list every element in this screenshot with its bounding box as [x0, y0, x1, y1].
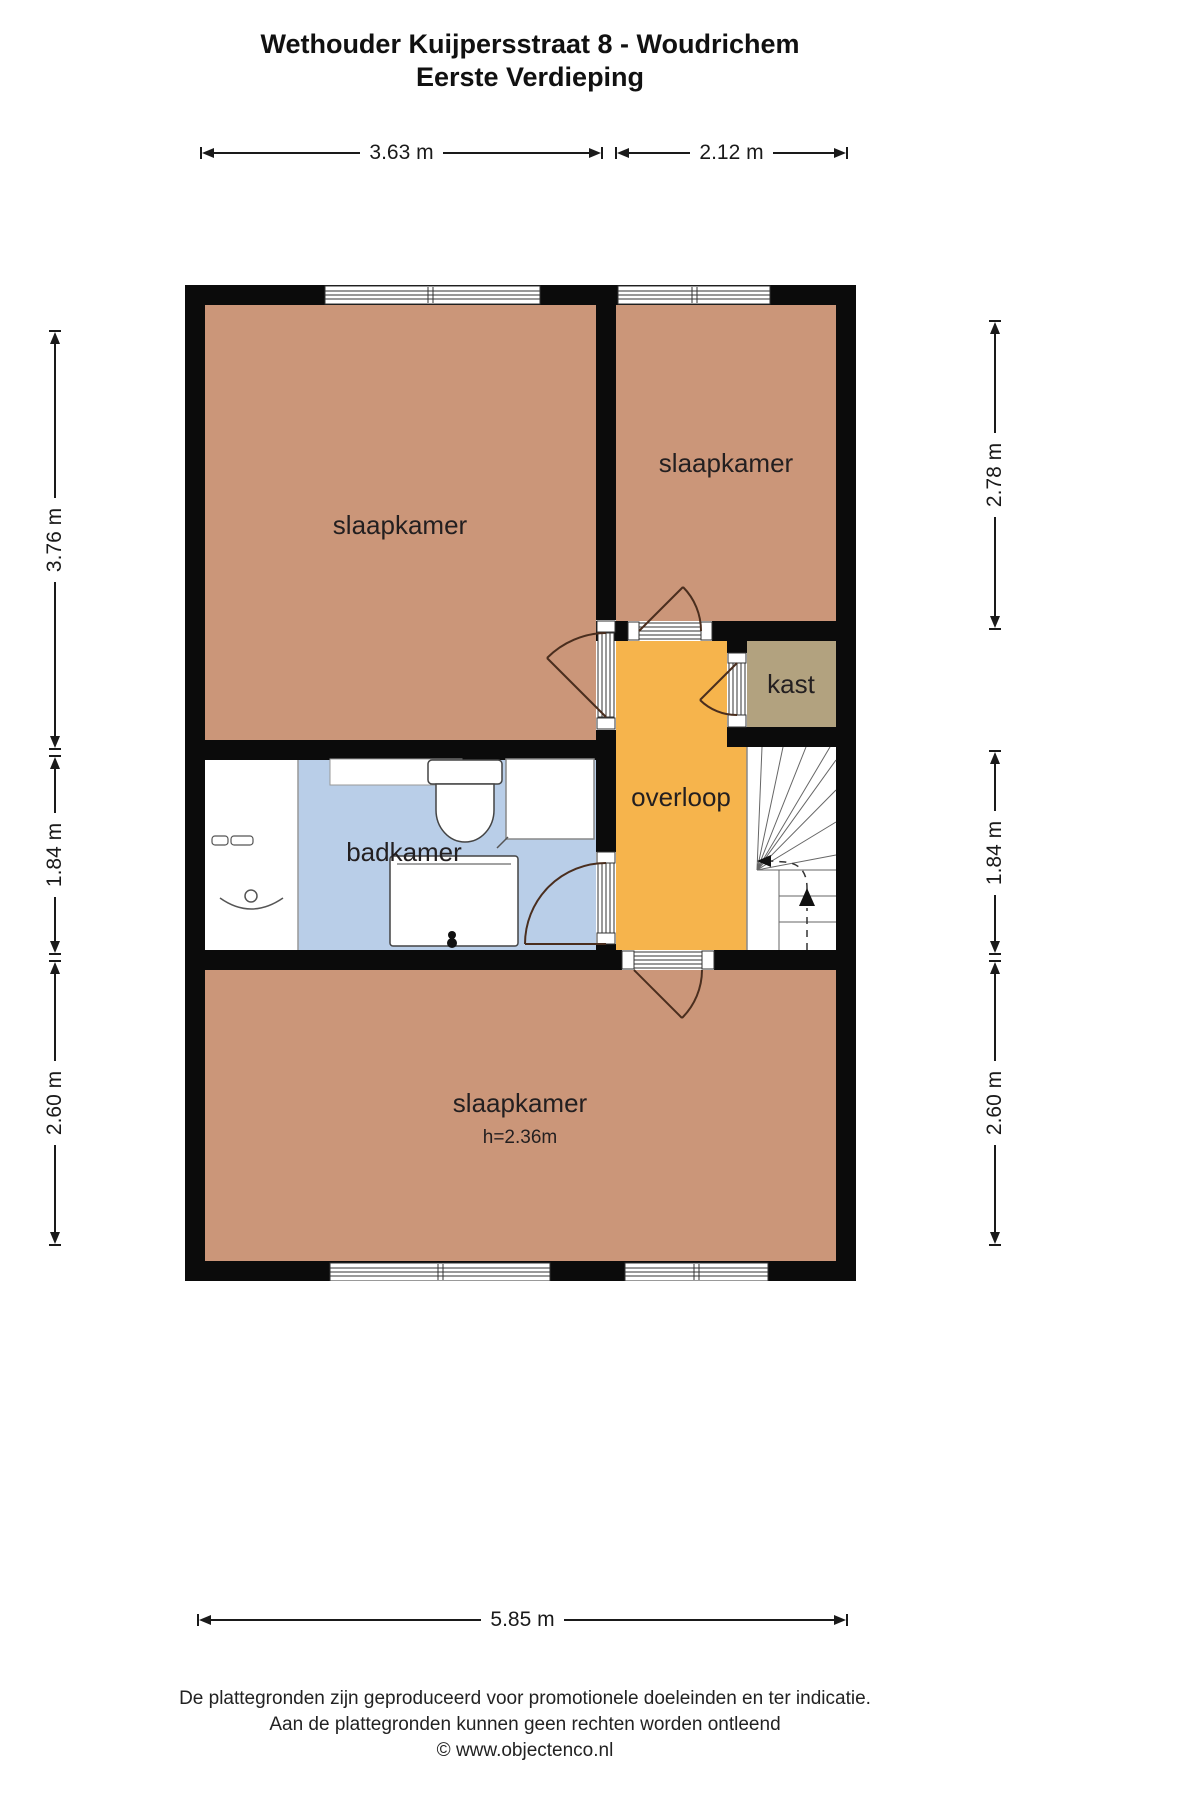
dim-line [54, 769, 56, 813]
arrow-up-icon [990, 752, 1000, 764]
room-landing-upper [616, 641, 727, 747]
threshold-bathroom [597, 852, 615, 944]
label-bedroom-bottom-height: h=2.36m [483, 1127, 557, 1148]
window-top-right [618, 286, 770, 304]
dim-label: 3.76 m [43, 508, 67, 572]
dim-line [214, 152, 360, 154]
title-floor: Eerste Verdieping [0, 61, 1060, 94]
label-closet: kast [767, 669, 815, 699]
dim-line [994, 334, 996, 433]
dim-line [211, 1619, 481, 1621]
wall-center-upper [596, 285, 616, 620]
arrow-right-icon [589, 148, 601, 158]
dim-label: 5.85 m [481, 1608, 563, 1632]
dim-tick [49, 748, 61, 750]
dim-line [54, 897, 56, 941]
arrow-down-icon [990, 1232, 1000, 1244]
arrow-down-icon [50, 736, 60, 748]
dim-label-box: 1.84 m [48, 813, 62, 897]
label-bedroom-bottom: slaapkamer [453, 1088, 588, 1118]
arrow-down-icon [990, 941, 1000, 953]
dim-tick [989, 953, 1001, 955]
shelf-icon [212, 836, 253, 845]
dim-label: 2.12 m [690, 141, 772, 165]
label-bedroom-top-left: slaapkamer [333, 510, 468, 540]
page-title: Wethouder Kuijpersstraat 8 - Woudrichem … [0, 28, 1060, 94]
arrow-left-icon [617, 148, 629, 158]
arrow-down-icon [50, 941, 60, 953]
arrow-up-icon [50, 757, 60, 769]
label-landing: overloop [631, 782, 731, 812]
window-bottom-right [625, 1263, 768, 1281]
dim-line [994, 895, 996, 942]
dim-tick [49, 953, 61, 955]
dim-bottom: 5.85 m [197, 1613, 848, 1627]
copyright: © www.objectenco.nl [0, 1738, 1050, 1764]
title-address: Wethouder Kuijpersstraat 8 - Woudrichem [0, 28, 1060, 61]
dim-tick [49, 1244, 61, 1246]
dim-line [994, 974, 996, 1061]
dim-label: 1.84 m [983, 820, 1007, 884]
dim-right-3: 2.60 m [988, 960, 1002, 1246]
room-landing-lower [616, 747, 747, 950]
threshold-bedroom-top-left [597, 621, 615, 729]
dim-left-3: 2.60 m [48, 960, 62, 1246]
label-bathroom: badkamer [346, 837, 462, 867]
dim-label-box: 1.84 m [988, 811, 1002, 895]
dim-line [994, 764, 996, 811]
dim-line [54, 1145, 56, 1232]
dim-label: 2.60 m [43, 1071, 67, 1135]
dim-label-box: 2.60 m [988, 1061, 1002, 1145]
dim-line [994, 517, 996, 616]
dim-label-box: 2.78 m [988, 433, 1002, 517]
wall-closet-bottom [727, 727, 856, 747]
arrow-left-icon [202, 148, 214, 158]
dim-line [994, 1145, 996, 1232]
dim-line [54, 344, 56, 498]
dim-tick [846, 147, 848, 159]
wall-bedroom2-bottom-right [712, 621, 836, 641]
dim-label-box: 2.60 m [48, 1061, 62, 1145]
wall-stairs-bottom [714, 950, 856, 970]
bathtub-icon [390, 856, 518, 948]
arrow-down-icon [990, 616, 1000, 628]
dim-line [773, 152, 834, 154]
label-bedroom-top-right: slaapkamer [659, 448, 794, 478]
dim-label: 2.60 m [983, 1071, 1007, 1135]
dim-label-box: 3.76 m [48, 498, 62, 582]
dim-tick [989, 1244, 1001, 1246]
footer: De plattegronden zijn geproduceerd voor … [0, 1686, 1050, 1764]
dim-left-1: 3.76 m [48, 330, 62, 750]
dim-line [54, 974, 56, 1061]
dim-line [629, 152, 690, 154]
arrow-up-icon [990, 322, 1000, 334]
window-top-left [325, 286, 540, 304]
arrow-left-icon [199, 1615, 211, 1625]
threshold-bedroom-top-right [628, 622, 712, 640]
arrow-right-icon [834, 1615, 846, 1625]
dim-left-2: 1.84 m [48, 755, 62, 955]
dim-right-1: 2.78 m [988, 320, 1002, 630]
wall-closet-left-top [727, 641, 747, 653]
wall-bathroom-right-upper [596, 760, 616, 852]
dim-tick [846, 1614, 848, 1626]
dim-line [443, 152, 589, 154]
arrow-right-icon [834, 148, 846, 158]
dim-top-right: 2.12 m [615, 146, 848, 160]
wall-left [185, 285, 205, 1281]
disclaimer-line-2: Aan de plattegronden kunnen geen rechten… [0, 1712, 1050, 1738]
dim-label: 2.78 m [983, 443, 1007, 507]
dim-tick [989, 628, 1001, 630]
threshold-bedroom-bottom [622, 951, 714, 969]
wall-right [836, 285, 856, 1281]
window-bottom-left [330, 1263, 550, 1281]
dim-line [54, 582, 56, 736]
bathroom-shower-area [205, 760, 298, 950]
arrow-up-icon [50, 332, 60, 344]
dim-line [564, 1619, 834, 1621]
arrow-up-icon [990, 962, 1000, 974]
disclaimer-line-1: De plattegronden zijn geproduceerd voor … [0, 1686, 1050, 1712]
dim-top-left: 3.63 m [200, 146, 603, 160]
arrow-up-icon [50, 962, 60, 974]
arrow-down-icon [50, 1232, 60, 1244]
dim-label: 3.63 m [360, 141, 442, 165]
shower-icon [497, 759, 594, 848]
dim-tick [601, 147, 603, 159]
dim-label: 1.84 m [43, 823, 67, 887]
wall-bathroom-bottom [185, 950, 622, 970]
dim-right-2: 1.84 m [988, 750, 1002, 955]
floor-plan: slaapkamer slaapkamer kast overloop badk… [185, 285, 856, 1281]
wall-bathroom-top [185, 740, 616, 760]
